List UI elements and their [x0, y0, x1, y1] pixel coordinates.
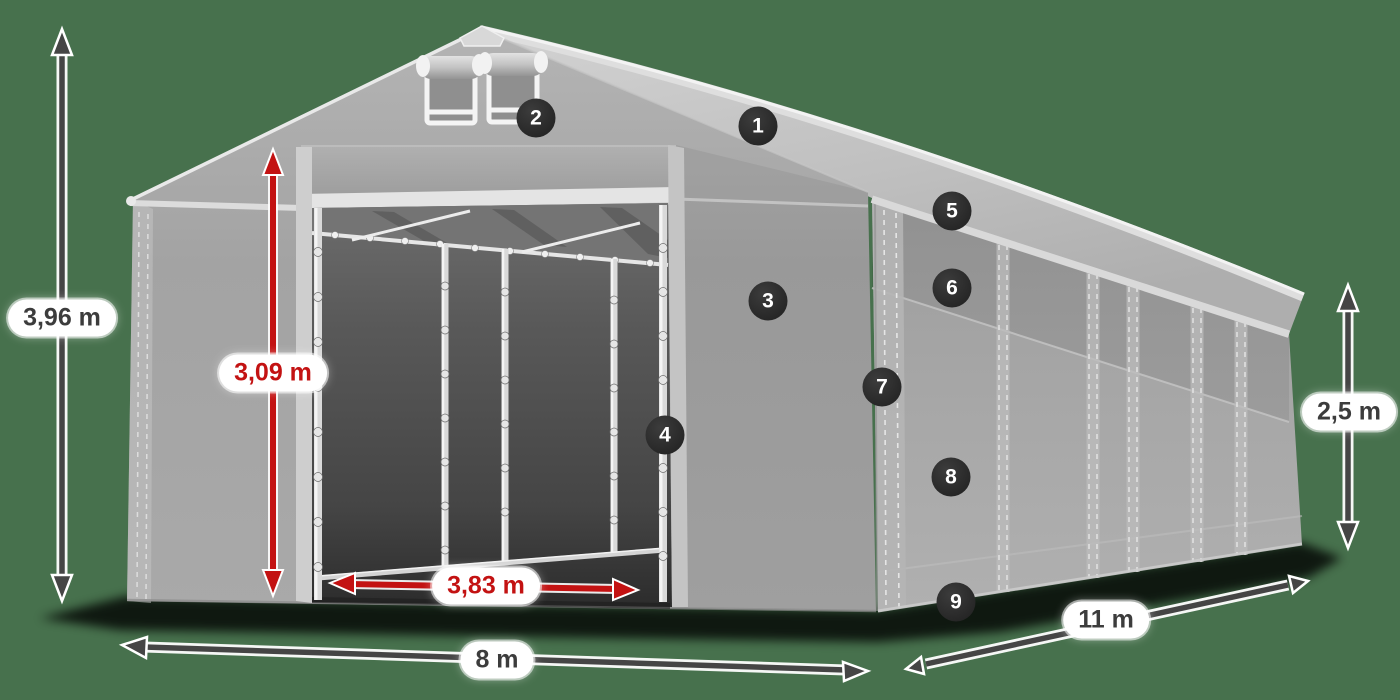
callout-7-corner-seam[interactable]: 7: [863, 368, 902, 407]
tent-dimensions-diagram: 3,96 m 3,09 m 3,83 m 8 m 11 m 2,5 m 1 2 …: [0, 0, 1400, 700]
dimension-label-side-length: 11 m: [1063, 602, 1149, 639]
callout-6-upper-side-panel[interactable]: 6: [933, 269, 972, 308]
dimension-label-front-width: 8 m: [460, 642, 533, 679]
tent-door: [296, 145, 688, 607]
dimension-label-total-height: 3,96 m: [8, 300, 116, 337]
callout-8-side-panel[interactable]: 8: [932, 458, 971, 497]
door-opening: [310, 203, 672, 607]
tent-illustration: [0, 0, 1400, 700]
callout-3-front-wall[interactable]: 3: [749, 282, 788, 321]
callout-9-ground-skirt[interactable]: 9: [937, 583, 976, 622]
callout-5-eave[interactable]: 5: [933, 192, 972, 231]
dimension-label-door-height: 3,09 m: [219, 355, 327, 392]
callout-4-door-frame[interactable]: 4: [646, 416, 685, 455]
callout-2-vents[interactable]: 2: [517, 99, 556, 138]
callout-1-roof[interactable]: 1: [739, 107, 778, 146]
dimension-label-door-width: 3,83 m: [432, 568, 540, 605]
vent-left: [416, 54, 486, 123]
dimension-label-side-height: 2,5 m: [1302, 394, 1396, 431]
